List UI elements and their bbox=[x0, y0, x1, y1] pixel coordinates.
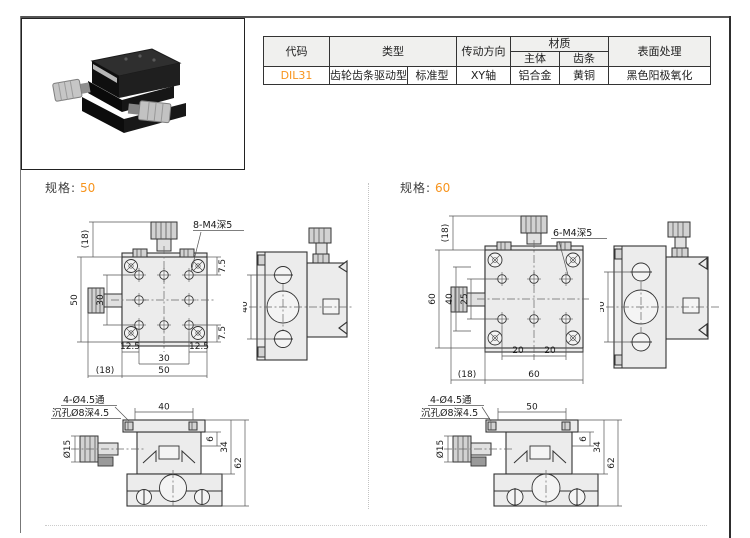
stage-photo-illustration bbox=[52, 49, 186, 133]
dim-right-margin: 12.5 bbox=[189, 342, 209, 352]
product-photo-box bbox=[21, 18, 245, 170]
callout-line1: 4-Ø4.5通 bbox=[63, 395, 105, 406]
dim-knob-width: (18) bbox=[458, 370, 476, 380]
cell-drive-direction: XY轴 bbox=[457, 67, 511, 85]
spec-label-text: 规格: bbox=[400, 181, 431, 195]
header-surface: 表面处理 bbox=[609, 37, 711, 67]
section-divider-bottom bbox=[45, 525, 707, 526]
stage-body bbox=[71, 420, 222, 506]
cell-type-sub: 标准型 bbox=[408, 67, 457, 85]
header-type: 类型 bbox=[330, 37, 457, 67]
dim-top-offset: 7.5 bbox=[218, 259, 228, 273]
cell-material-rack: 黄铜 bbox=[560, 67, 609, 85]
dim-knob-height: (18) bbox=[81, 230, 91, 248]
dim-mid-height: 40 bbox=[445, 293, 455, 305]
dim-inner-height: 30 bbox=[96, 294, 106, 306]
drawing-spec50-top-view: (18) 50 30 7.5 7.5 12.5 12.5 30 50 (18) … bbox=[33, 212, 245, 384]
dim-left-margin: 12.5 bbox=[120, 342, 140, 352]
catalog-page: 代码 类型 传动方向 材质 表面处理 主体 齿条 DIL31 齿轮齿条驱动型 标… bbox=[0, 0, 750, 538]
dim-knob-width: (18) bbox=[96, 366, 114, 376]
dim-total-height: 62 bbox=[607, 457, 617, 468]
spec-value: 60 bbox=[435, 181, 450, 195]
product-photo bbox=[22, 19, 246, 171]
header-material-body: 主体 bbox=[511, 52, 560, 67]
callout-text: 6-M4深5 bbox=[553, 228, 592, 239]
cell-code: DIL31 bbox=[264, 67, 330, 85]
dim-plate-width: 50 bbox=[526, 403, 538, 413]
dim-hole-right: 20 bbox=[544, 346, 556, 356]
dim-mid-height: 34 bbox=[220, 441, 230, 453]
dim-total-height: 60 bbox=[428, 293, 438, 305]
spec-value: 50 bbox=[80, 181, 95, 195]
dim-inner-height: 25 bbox=[460, 293, 470, 304]
stage-body bbox=[249, 228, 353, 360]
header-material: 材质 bbox=[511, 37, 609, 52]
dim-plate-width: 40 bbox=[158, 403, 170, 413]
cell-surface: 黑色阳极氧化 bbox=[609, 67, 711, 85]
callout-text: 8-M4深5 bbox=[193, 220, 232, 231]
spec-label-50: 规格:50 bbox=[45, 179, 95, 196]
top-knob bbox=[521, 216, 547, 233]
dim-total-width: 60 bbox=[528, 370, 540, 380]
table-row: DIL31 齿轮齿条驱动型 标准型 XY轴 铝合金 黄铜 黑色阳极氧化 bbox=[264, 67, 711, 85]
counterbore-callout: 4-Ø4.5通 沉孔Ø8深4.5 bbox=[51, 395, 129, 421]
header-drive-direction: 传动方向 bbox=[457, 37, 511, 67]
header-code: 代码 bbox=[264, 37, 330, 67]
dim-knob-height: (18) bbox=[441, 224, 451, 242]
drawing-spec50-side-view: 40 bbox=[243, 220, 358, 370]
spec-label-60: 规格:60 bbox=[400, 179, 450, 196]
dim-total-height: 62 bbox=[234, 457, 244, 468]
dim-total-width: 50 bbox=[158, 366, 170, 376]
spec-table: 代码 类型 传动方向 材质 表面处理 主体 齿条 DIL31 齿轮齿条驱动型 标… bbox=[263, 36, 711, 85]
drawing-spec60-front-view: 50 Ø15 6 34 62 4-Ø4.5通 沉孔Ø8深4.5 bbox=[420, 388, 632, 514]
dim-height: 40 bbox=[243, 301, 250, 313]
stage-body bbox=[444, 420, 598, 506]
dim-bottom-offset: 7.5 bbox=[218, 326, 228, 340]
page-border-right bbox=[729, 16, 731, 538]
drawing-spec60-side-view: 50 bbox=[600, 216, 725, 374]
callout-line1: 4-Ø4.5通 bbox=[430, 395, 472, 406]
section-divider-vertical bbox=[368, 183, 369, 509]
dim-mid-height: 34 bbox=[593, 441, 603, 453]
drawing-spec50-front-view: 40 Ø15 6 34 62 4-Ø4.5通 沉孔Ø8深4.5 bbox=[45, 388, 257, 514]
dim-plate-thickness: 6 bbox=[206, 436, 216, 442]
dim-inner-width: 30 bbox=[158, 354, 170, 364]
dim-total-height: 50 bbox=[70, 294, 80, 306]
dim-height: 50 bbox=[600, 301, 607, 313]
header-material-rack: 齿条 bbox=[560, 52, 609, 67]
drawing-spec60-top-view: (18) 60 40 25 20 20 60 (18) 6-M4深5 bbox=[393, 208, 608, 386]
callout-line2: 沉孔Ø8深4.5 bbox=[52, 408, 109, 419]
spec-label-text: 规格: bbox=[45, 181, 76, 195]
counterbore-callout: 4-Ø4.5通 沉孔Ø8深4.5 bbox=[420, 395, 491, 421]
x-axis-knob bbox=[52, 78, 91, 102]
cell-material-body: 铝合金 bbox=[511, 67, 560, 85]
dim-knob-diameter: Ø15 bbox=[62, 440, 73, 459]
dim-hole-left: 20 bbox=[512, 346, 524, 356]
callout-line2: 沉孔Ø8深4.5 bbox=[421, 408, 478, 419]
dim-knob-diameter: Ø15 bbox=[435, 440, 446, 459]
dim-plate-thickness: 6 bbox=[579, 436, 589, 442]
stage-body bbox=[606, 222, 720, 368]
top-knob bbox=[668, 222, 690, 237]
top-knob bbox=[309, 228, 331, 243]
top-knob bbox=[151, 222, 177, 239]
cell-type-main: 齿轮齿条驱动型 bbox=[330, 67, 408, 85]
